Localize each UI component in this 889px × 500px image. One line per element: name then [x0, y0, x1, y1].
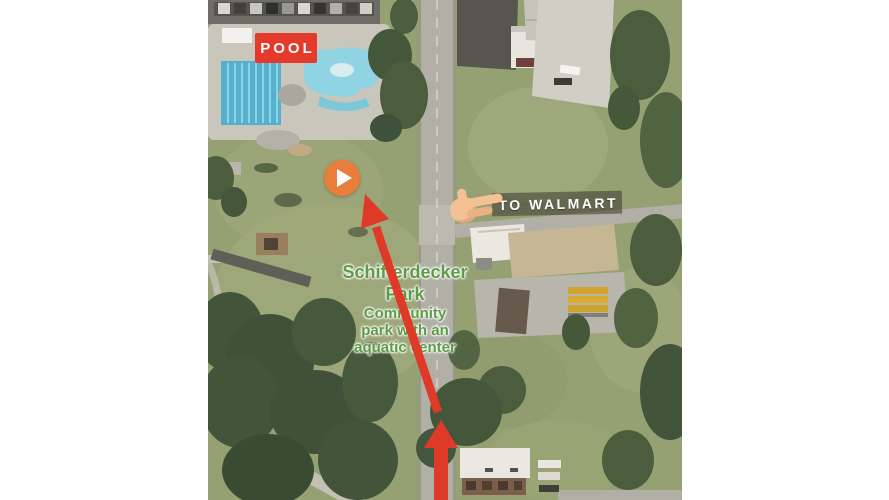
play-button[interactable]: [324, 160, 360, 196]
park-subtitle-line: Community: [305, 305, 505, 322]
satellite-map-image: [208, 0, 682, 500]
video-thumbnail[interactable]: Schifferdecker Park Community park with …: [208, 0, 682, 500]
park-title-line: Schifferdecker: [305, 261, 505, 283]
park-title-line: Park: [305, 283, 505, 305]
article-image-frame: Schifferdecker Park Community park with …: [0, 0, 889, 500]
park-map-label: Schifferdecker Park: [305, 261, 505, 305]
park-subtitle-line: aquatic center: [305, 339, 505, 356]
to-walmart-sign: TO WALMART: [492, 191, 622, 217]
to-walmart-label: TO WALMART: [496, 194, 618, 213]
play-icon: [337, 169, 352, 187]
hand-index-finger: [464, 193, 503, 208]
pool-badge: POOL: [255, 33, 317, 63]
park-subtitle-line: park with an: [305, 322, 505, 339]
pool-badge-label: POOL: [257, 40, 315, 57]
park-map-sublabel: Community park with an aquatic center: [305, 305, 505, 356]
